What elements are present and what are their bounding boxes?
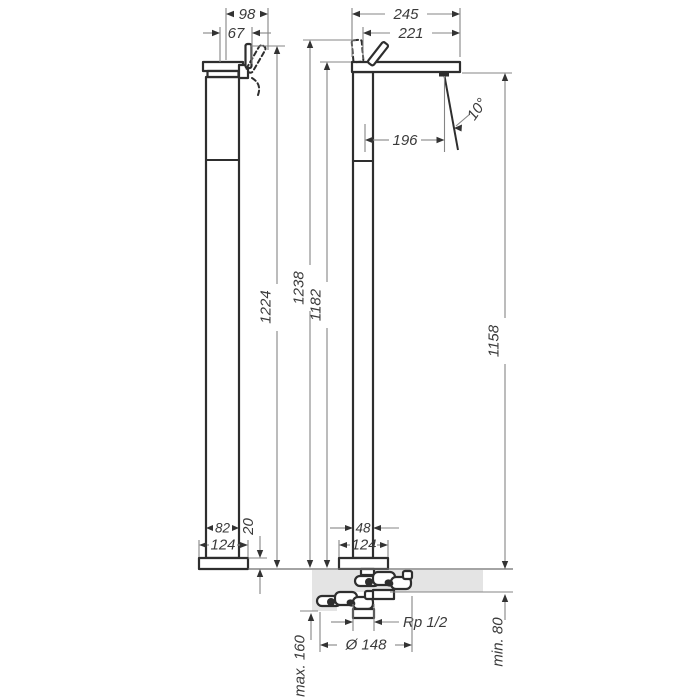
aerator-nub [439,72,449,77]
dim-221-label: 221 [397,25,423,42]
dim-1182-label: 1182 [308,288,325,321]
floor-section [248,76,513,618]
dim-1224-label: 1224 [258,290,275,323]
dim-rp12-label: Rp 1/2 [403,614,448,631]
dimension-10deg: 10° [454,95,491,131]
dim-67-label: 67 [228,25,245,42]
front-column-body [353,72,373,558]
side-column-body [206,77,239,558]
dimension-max160: max. 160 [292,613,315,697]
front-view [339,40,460,569]
side-cap-lip [208,71,239,77]
dim-196-label: 196 [392,132,418,149]
dim-d148-label: Ø 148 [345,637,388,654]
dim-10deg-label: 10° [464,95,491,123]
base-connector [361,569,374,575]
dim-max160-label: max. 160 [292,634,309,696]
side-view [199,44,267,569]
dim-245-label: 245 [392,6,419,23]
dimension-min80: min. 80 [490,594,509,667]
dimension-20: 20 [240,518,267,594]
front-base-plate [339,558,388,569]
dim-min80-label: min. 80 [490,617,507,667]
dim-1158-label: 1158 [486,324,503,357]
dim-1238-label: 1238 [291,271,308,305]
technical-drawing-canvas: 98 67 1224 82 124 20 245 221 [0,0,700,700]
dim-20-label: 20 [240,518,257,536]
dimension-1182: 1182 [308,62,352,568]
dimension-48: 48 [330,521,399,536]
water-stream-line [445,76,459,150]
side-base-plate [199,558,248,569]
side-column-cap [203,62,243,71]
dim-124-side-label: 124 [210,537,235,554]
dimension-196: 196 [365,124,445,152]
dimension-drawing: 98 67 1224 82 124 20 245 221 [0,0,700,700]
side-handle-swing-arc [252,78,259,95]
pipe-socket-lower [353,609,374,618]
dimension-1158: 1158 [462,73,512,569]
dimension-rp12: Rp 1/2 [331,604,448,631]
dim-124-front-label: 124 [351,537,376,554]
dim-48-label: 48 [355,521,371,536]
pipe-socket-upper [373,590,394,599]
dim-98-label: 98 [239,6,256,23]
dimension-1224: 1224 [250,46,285,568]
front-handle-lever-dashed [352,40,364,63]
dim-82-label: 82 [215,521,231,536]
